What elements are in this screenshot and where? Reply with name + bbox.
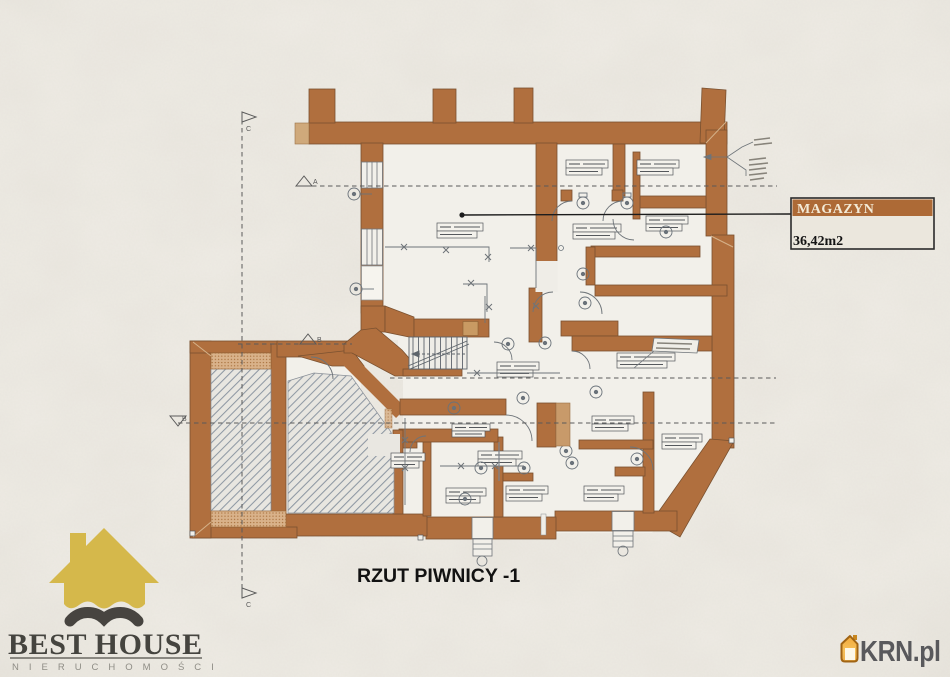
svg-text:36,42m2: 36,42m2 [793, 234, 843, 249]
svg-text:MAGAZYN: MAGAZYN [797, 202, 874, 217]
svg-text:NIERUCHOMOŚCI: NIERUCHOMOŚCI [12, 661, 224, 673]
svg-text:BEST HOUSE: BEST HOUSE [8, 628, 203, 661]
svg-text:KRN.pl: KRN.pl [860, 635, 941, 667]
svg-text:C: C [246, 602, 251, 609]
svg-text:RZUT PIWNICY -1: RZUT PIWNICY -1 [357, 565, 520, 587]
svg-text:B: B [317, 337, 322, 344]
svg-text:C: C [246, 126, 251, 133]
svg-text:A: A [313, 179, 318, 186]
